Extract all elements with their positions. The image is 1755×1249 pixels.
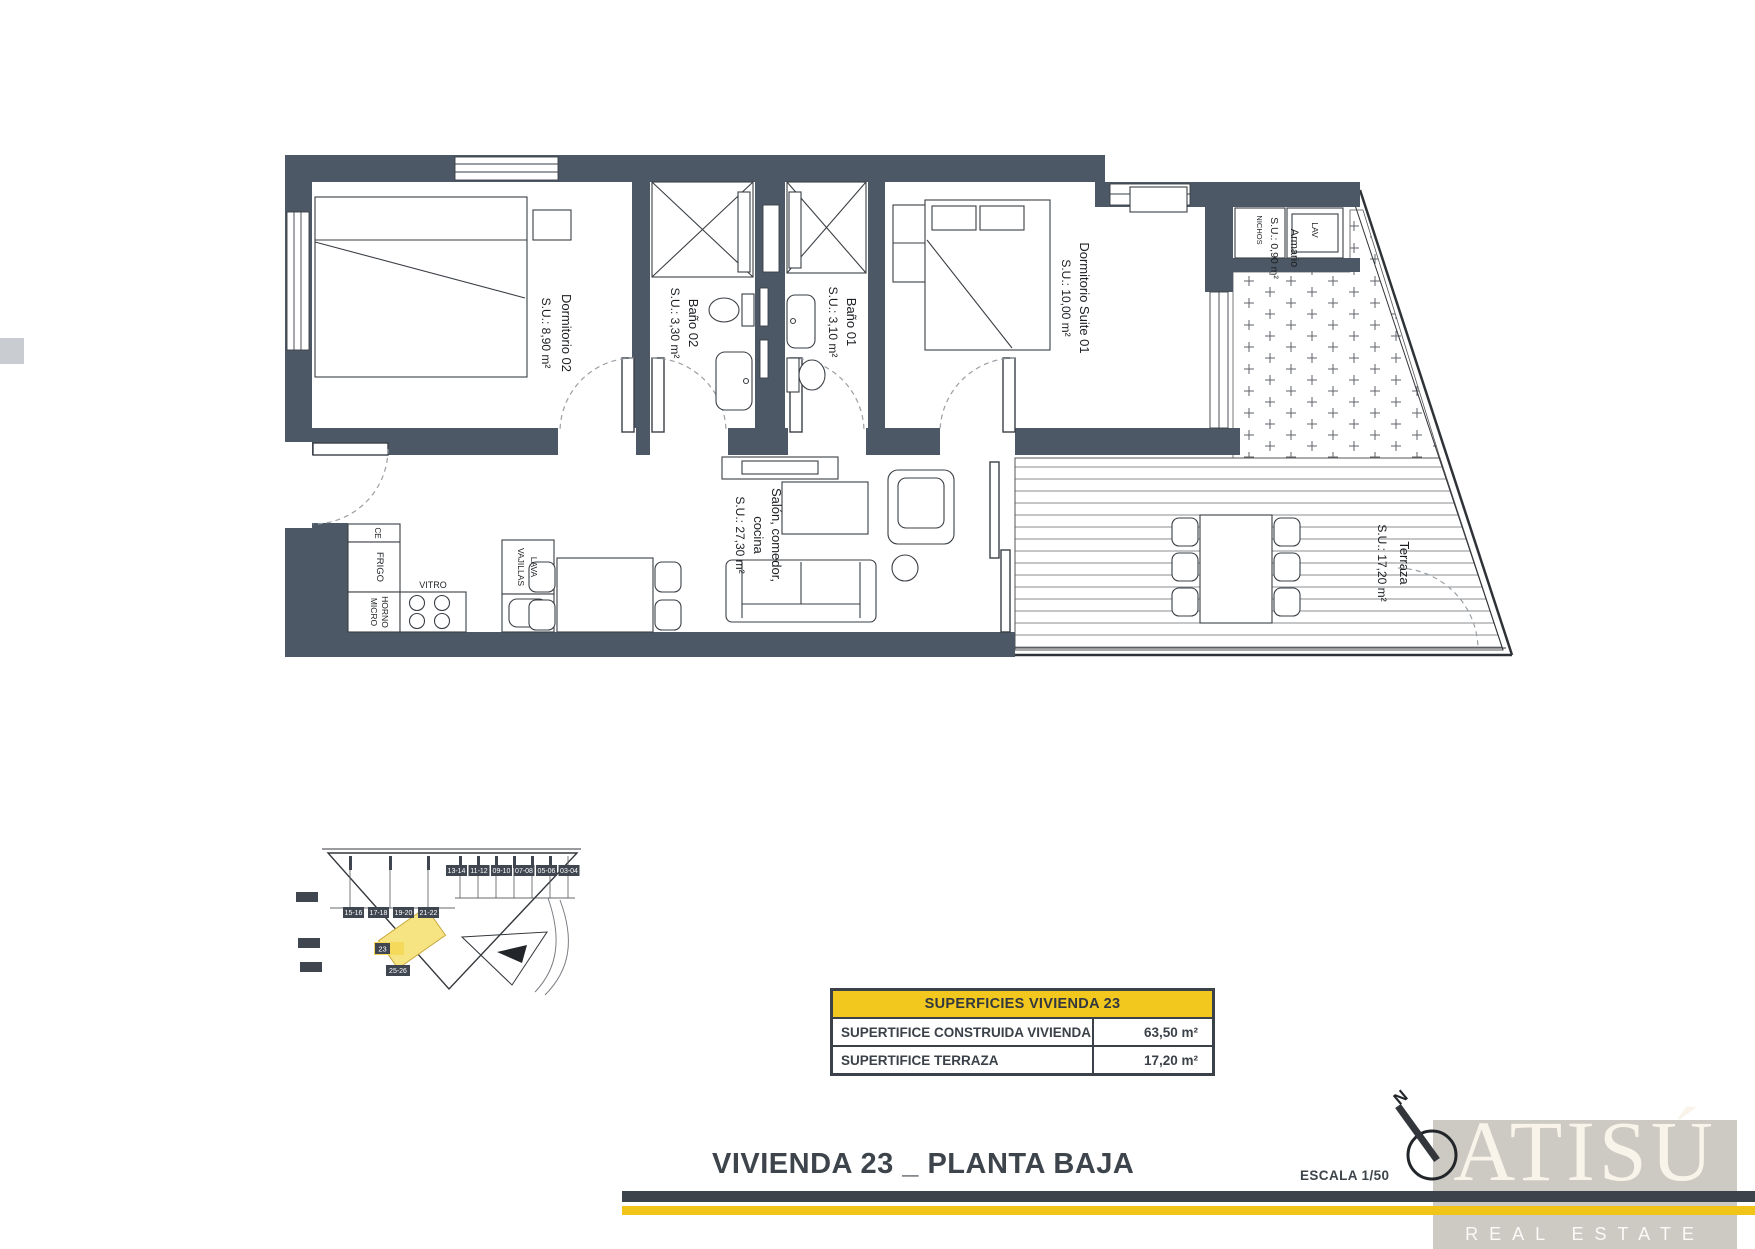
toilet-bano02 — [742, 294, 754, 326]
laundry-closet — [1235, 208, 1343, 258]
courtyard — [462, 932, 547, 985]
brand-tagline: REAL ESTATE — [1433, 1224, 1737, 1245]
room-area-armario: S.U.: 0,90 m² — [1268, 217, 1280, 279]
bathroom02-fixtures — [652, 182, 754, 410]
window-dormitorio02-top — [455, 157, 558, 180]
terrace-table — [1200, 515, 1272, 623]
doors — [313, 358, 1015, 632]
room-label-dormitorio02: Dormitorio 02 — [559, 294, 574, 372]
bathroom01-fixtures — [787, 182, 866, 392]
room-label-salon-line1: Salón, comedor, — [769, 488, 784, 582]
niche-box — [1235, 208, 1285, 258]
washer-box — [1287, 208, 1343, 258]
shower-bano01 — [787, 182, 866, 273]
door-bano02 — [652, 358, 664, 432]
badge-07-08: 07-08 — [515, 868, 533, 875]
tv-unit — [722, 457, 838, 479]
badge-11-12: 11-12 — [470, 868, 487, 875]
plot-boundary-diagonal — [1360, 190, 1512, 655]
title-rule-yellow — [622, 1206, 1755, 1215]
surfaces-table: SUPERFICIES VIVIENDA 23 SUPERTIFICE CONS… — [830, 988, 1215, 1076]
entrance-opening — [285, 442, 312, 528]
scan-edge-artifact — [0, 338, 24, 364]
door-suite — [1003, 358, 1015, 432]
brand-logo: ATISÚ — [1433, 1108, 1737, 1194]
nightstand — [533, 210, 571, 240]
living-furniture — [722, 457, 954, 622]
badge-17-18: 17-18 — [370, 910, 388, 917]
label-ce: CE — [373, 527, 382, 538]
room-label-suite: Dormitorio Suite 01 — [1077, 242, 1092, 353]
fridge — [348, 542, 400, 592]
room-area-salon: S.U.: 27,30 m² — [733, 496, 747, 573]
scale-label: ESCALA 1/50 — [1300, 1168, 1389, 1183]
highlighted-unit-23 — [378, 907, 445, 968]
label-vajillas: VAJILLAS — [516, 548, 526, 586]
chair — [529, 562, 555, 592]
badge-25-26: 25-26 — [389, 968, 407, 975]
armchair — [888, 470, 954, 544]
dining-table — [557, 558, 653, 632]
bed-dormitorio02 — [315, 197, 571, 377]
windows — [285, 157, 1228, 528]
street-lines — [535, 898, 568, 995]
door-bano01 — [790, 358, 802, 432]
badge-13-14: 13-14 — [448, 868, 466, 875]
dishwasher — [502, 540, 554, 594]
badge-23: 23 — [378, 945, 386, 954]
kitchen — [348, 524, 554, 632]
label-lav: LAV — [1310, 222, 1320, 238]
badge-19-20: 19-20 — [395, 910, 413, 917]
kitchen-sink — [502, 594, 554, 632]
surfaces-table-header: SUPERFICIES VIVIENDA 23 — [833, 991, 1212, 1019]
door-dormitorio02 — [622, 358, 634, 432]
sliding-door-terrace — [990, 462, 1010, 632]
toilet-bano01 — [787, 358, 799, 392]
room-area-dormitorio02: S.U.: 8,90 m² — [539, 298, 553, 369]
row-value-terrace: 17,20 m² — [1092, 1047, 1212, 1073]
oven-micro — [348, 592, 400, 632]
chair — [1274, 518, 1300, 546]
shower-bano02 — [652, 182, 753, 277]
sink-bano01 — [787, 295, 815, 348]
label-lava: LAVA — [529, 557, 539, 578]
row-label-terrace: SUPERTIFICE TERRAZA — [833, 1047, 1092, 1073]
label-horno: HORNO — [380, 596, 390, 628]
label-vitro: VITRO — [419, 580, 447, 590]
nightstand — [1130, 187, 1187, 212]
sofa — [726, 560, 876, 622]
badge-05-06: 05-06 — [538, 868, 556, 875]
room-area-bano01: S.U.: 3,10 m² — [826, 287, 840, 358]
badge-15-16: 15-16 — [345, 910, 363, 917]
sink-bano02 — [716, 352, 752, 410]
window-suite-terrace — [1210, 292, 1228, 428]
walls — [285, 155, 1360, 657]
terrace-surfaces — [1015, 190, 1512, 655]
coffee-table — [782, 482, 868, 534]
chair — [1274, 588, 1300, 616]
terrace-dining-set — [1172, 515, 1300, 623]
terrace-gate-swing — [1398, 568, 1478, 648]
window-dormitorio02-side — [287, 212, 309, 350]
room-label-bano01: Baño 01 — [844, 298, 859, 346]
room-label-salon-line2: cocina — [751, 516, 766, 554]
floor-plan-sheet: SUPERFICIES VIVIENDA 23 SUPERTIFICE CONS… — [0, 0, 1755, 1249]
site-key-plan: 13-14 11-12 09-10 07-08 05-06 03-04 15-1… — [296, 849, 581, 995]
badge-21-22: 21-22 — [420, 910, 438, 917]
chair — [1274, 553, 1300, 581]
table-row: SUPERTIFICE CONSTRUIDA VIVIENDA 63,50 m² — [833, 1019, 1212, 1047]
room-label-bano02: Baño 02 — [686, 299, 701, 347]
row-value-constructed: 63,50 m² — [1092, 1019, 1212, 1045]
label-nichos: NICHOS — [1255, 215, 1264, 244]
north-label: N — [1390, 1086, 1412, 1108]
page-title: VIVIENDA 23 _ PLANTA BAJA — [712, 1148, 1134, 1181]
badge-09-10: 09-10 — [493, 868, 511, 875]
room-area-bano02: S.U.: 3,30 m² — [668, 288, 682, 359]
chair — [1172, 588, 1198, 616]
chair — [1172, 518, 1198, 546]
chair — [655, 562, 681, 592]
cooktop — [400, 592, 466, 632]
wardrobe-suite — [893, 205, 935, 282]
label-frigo: FRIGO — [374, 552, 385, 582]
room-label-terraza: Terraza — [1397, 541, 1412, 585]
window-suite-top — [1110, 184, 1190, 205]
chair — [1172, 553, 1198, 581]
badge-03-04: 03-04 — [560, 868, 578, 875]
table-row: SUPERTIFICE TERRAZA 17,20 m² — [833, 1047, 1212, 1073]
unit-badges: 13-14 11-12 09-10 07-08 05-06 03-04 15-1… — [296, 865, 580, 976]
ce-unit — [348, 524, 400, 542]
chair — [529, 600, 555, 630]
room-area-terraza: S.U.: 17,20 m² — [1375, 524, 1389, 601]
chair — [655, 600, 681, 630]
row-label-constructed: SUPERTIFICE CONSTRUIDA VIVIENDA — [833, 1019, 1092, 1045]
room-area-suite: S.U.: 10,00 m² — [1059, 259, 1073, 336]
side-table — [892, 555, 918, 581]
label-micro: MICRO — [369, 598, 379, 627]
bed-suite — [893, 187, 1187, 350]
door-entrance — [313, 443, 388, 455]
dining-set — [529, 558, 681, 632]
room-label-armario: Armario — [1288, 229, 1300, 268]
